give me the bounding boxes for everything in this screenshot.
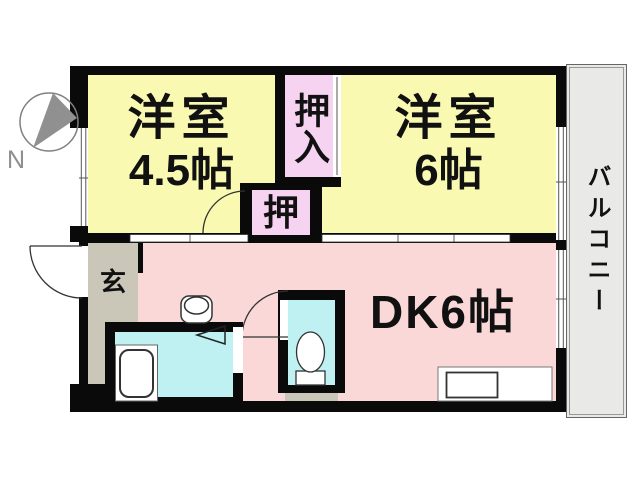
- room-western-6-extension: [322, 187, 341, 233]
- wall-pillar: [88, 384, 105, 401]
- room-size: 4.5帖: [88, 146, 275, 195]
- bathroom-floor: [115, 332, 233, 397]
- toilet-step: [285, 393, 338, 401]
- balcony-area: バルコニー: [566, 64, 627, 418]
- balcony-floor: バルコニー: [569, 67, 624, 415]
- floor-plan: バルコニー 洋室 4.5帖 洋室 6帖 押入 押 玄 DK6帖 N: [0, 0, 640, 480]
- room-label-western-4-5: 洋室 4.5帖: [88, 92, 275, 195]
- wall-pillar: [70, 226, 88, 242]
- toilet-floor: [288, 300, 335, 385]
- closet-oshi-label: 押: [252, 193, 310, 233]
- closet-oshiire-label: 押入: [285, 82, 333, 174]
- room-name: 洋室: [341, 92, 556, 146]
- wall-segment: [138, 243, 143, 273]
- room-label-western-6: 洋室 6帖: [341, 92, 556, 195]
- room-name: 洋室: [88, 92, 275, 146]
- balcony-label: バルコニー: [579, 164, 614, 319]
- compass-north-label: N: [7, 146, 37, 175]
- room-size: 6帖: [341, 146, 556, 195]
- entrance-label: 玄: [88, 268, 138, 297]
- dining-kitchen-label: DK6帖: [330, 287, 556, 339]
